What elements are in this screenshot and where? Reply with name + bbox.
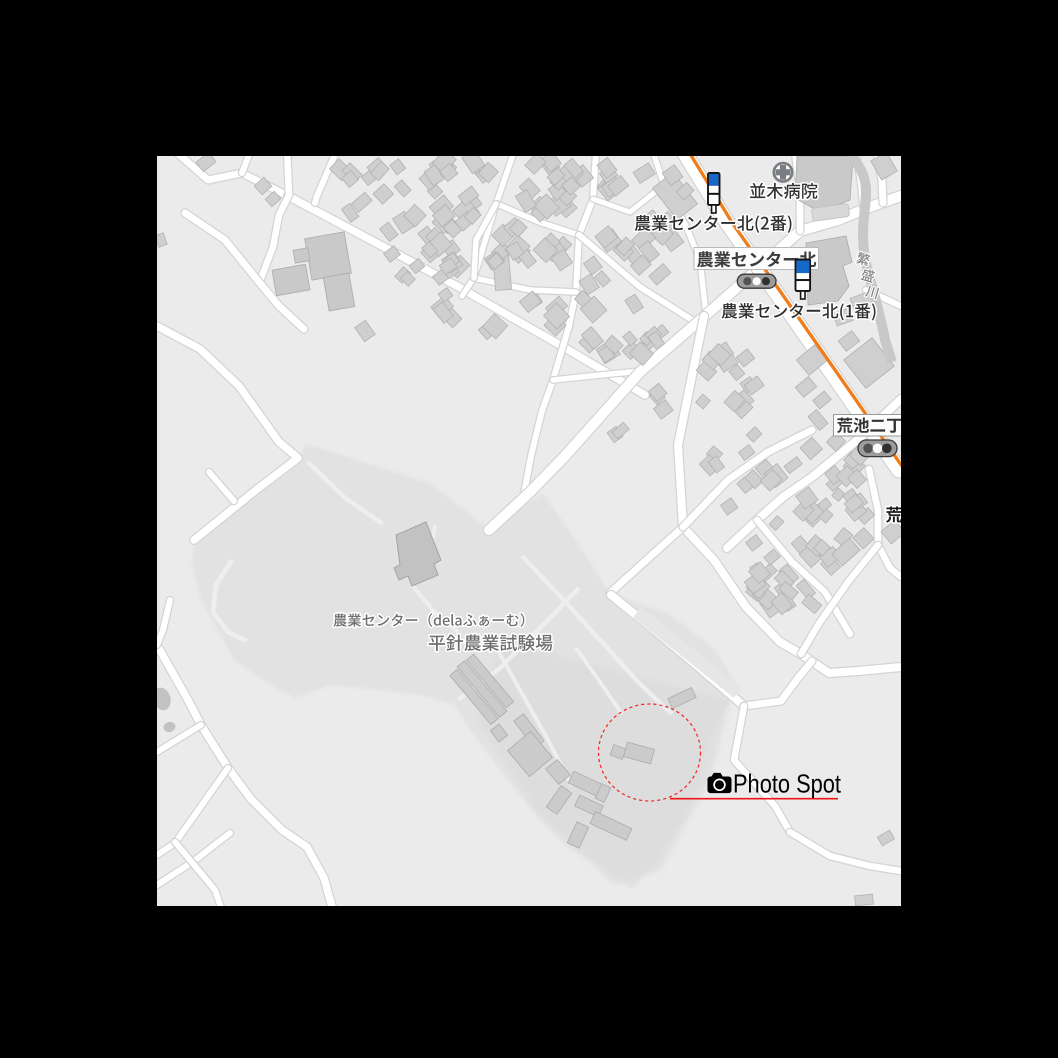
svg-text:Photo Spot: Photo Spot [733,769,842,799]
